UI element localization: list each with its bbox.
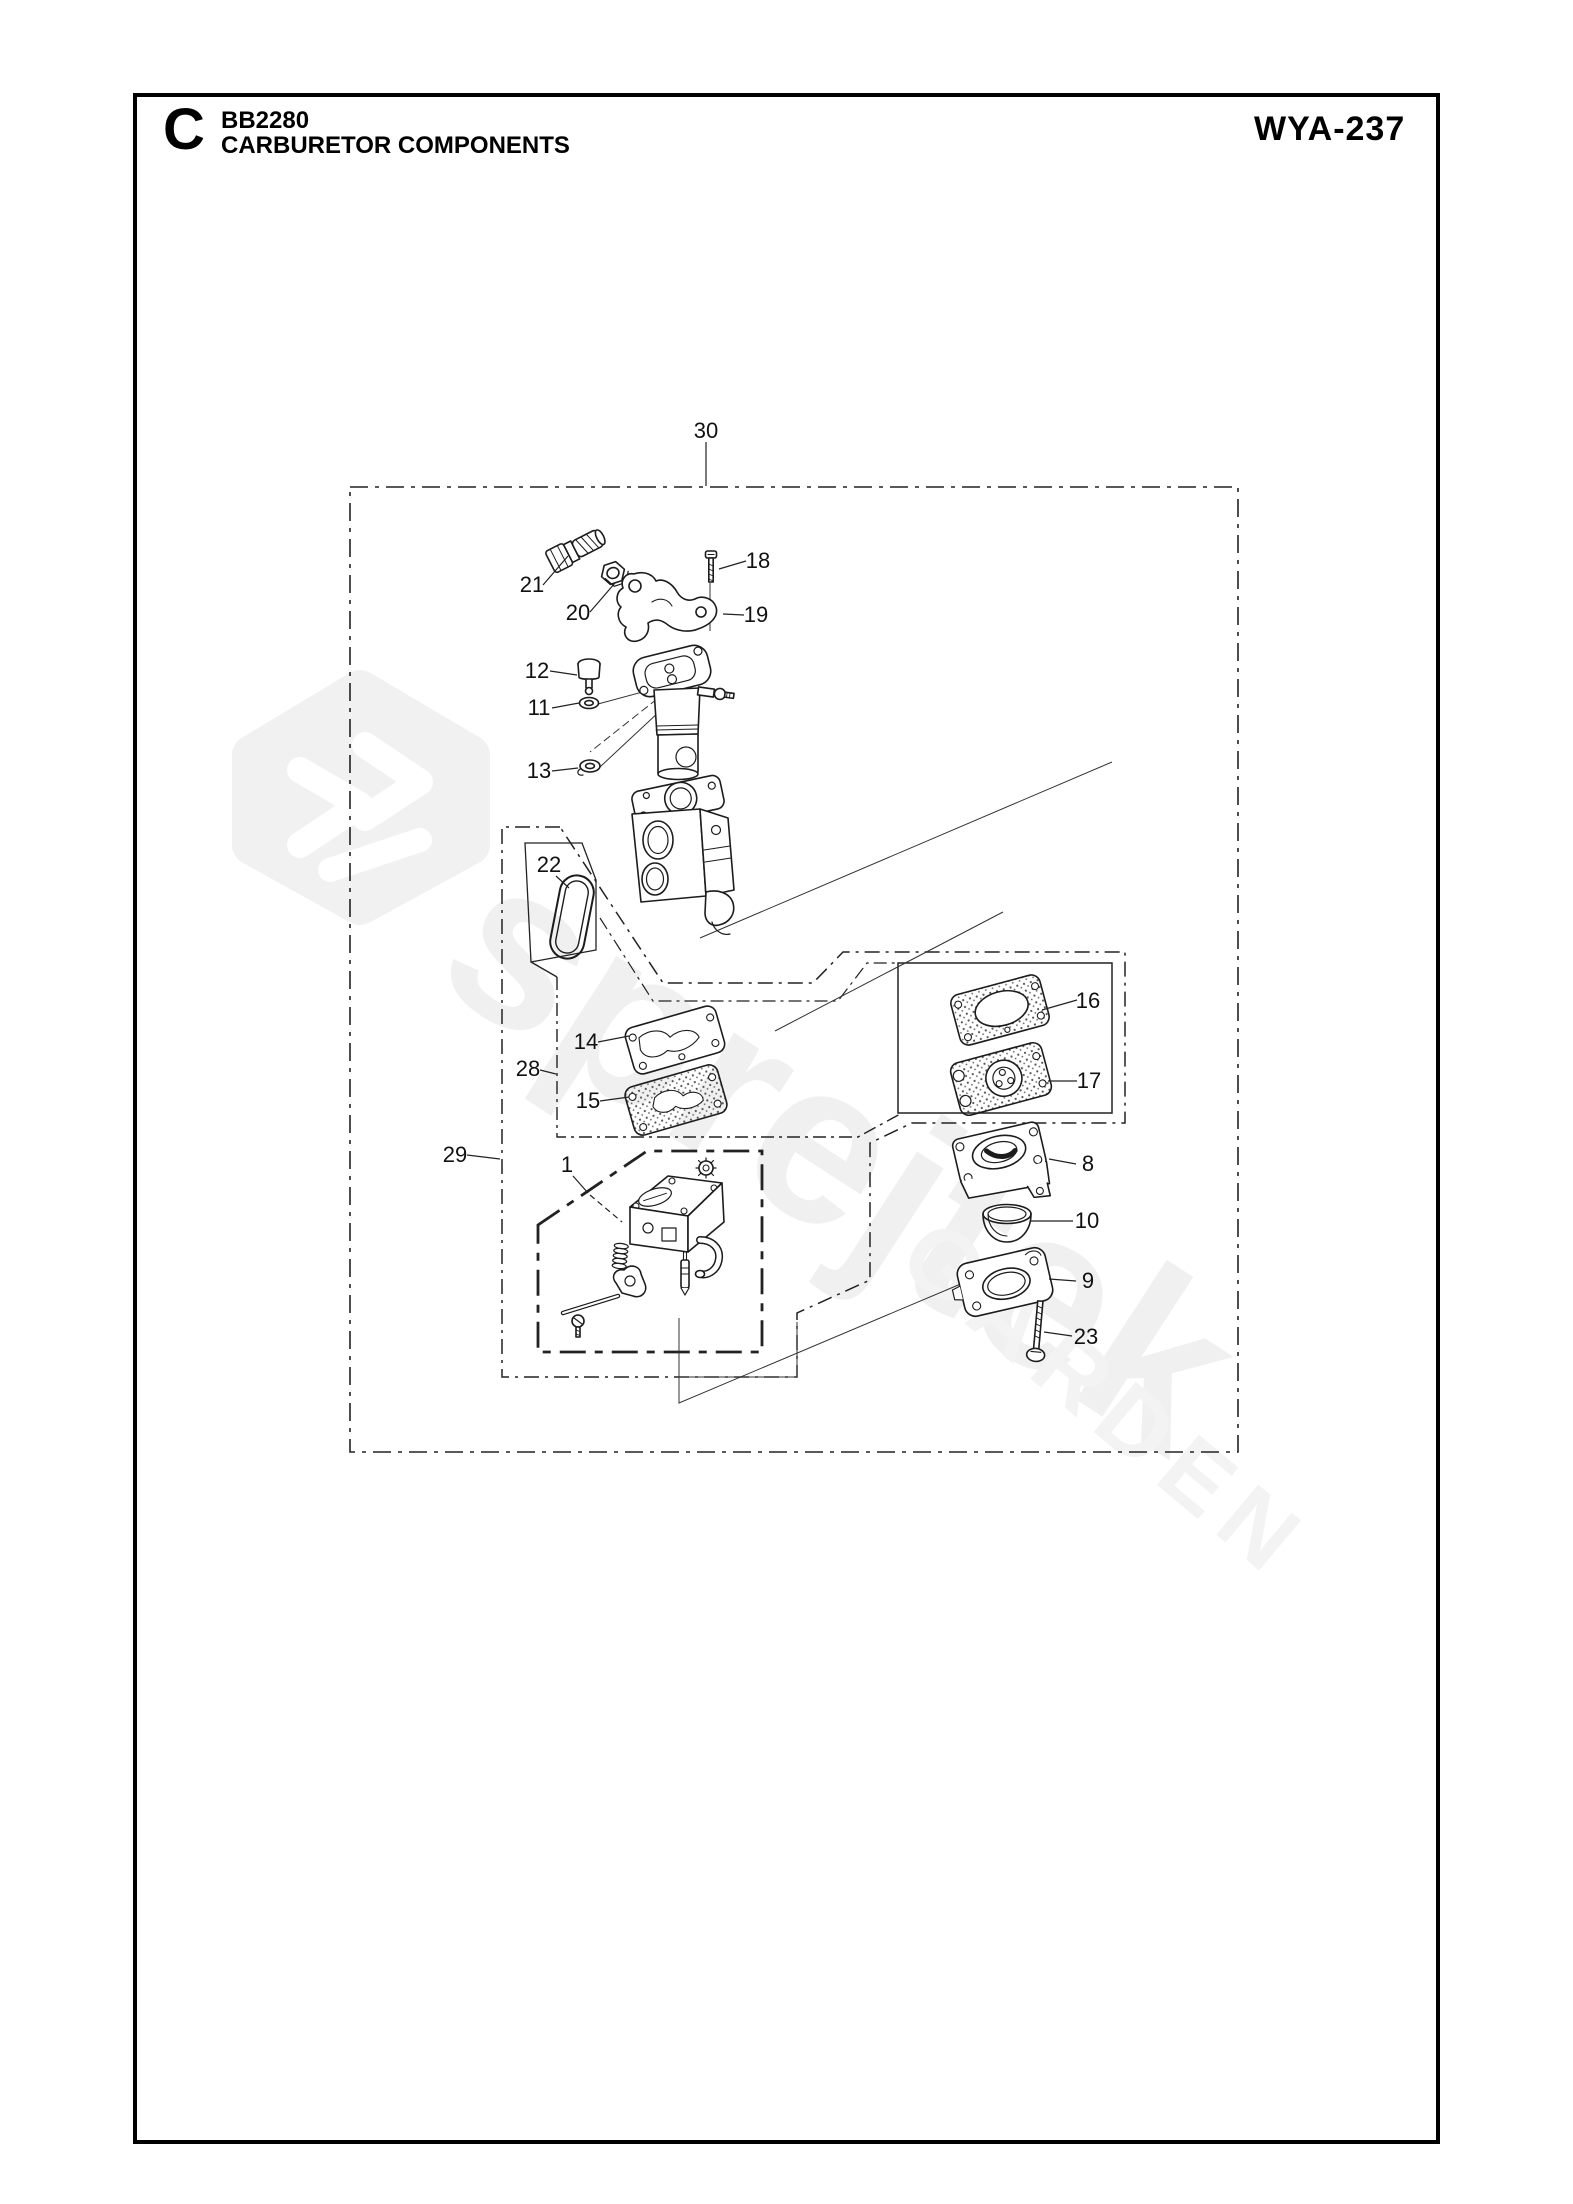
part-1-gear-nut: [696, 1158, 716, 1178]
callout-23: 23: [1074, 1324, 1098, 1349]
watermark: sprejtek GARDEN: [252, 690, 1329, 1600]
callout-9: 9: [1082, 1268, 1094, 1293]
leader-19: [723, 614, 744, 615]
exploded-parts-diagram: sprejtek GARDEN: [0, 0, 1573, 2204]
assembly-diagonal: [700, 762, 1112, 938]
part-1-spring: [612, 1243, 629, 1270]
callout-22: 22: [537, 852, 561, 877]
parts-catalog-page: C BB2280 CARBURETOR COMPONENTS WYA-237 s…: [0, 0, 1573, 2204]
leader-29: [467, 1155, 500, 1159]
callout-21: 21: [520, 572, 544, 597]
callout-17: 17: [1077, 1068, 1101, 1093]
leader-13: [552, 768, 578, 771]
callout-1: 1: [561, 1152, 573, 1177]
part-18-screw: [706, 551, 717, 582]
leader-20: [590, 583, 615, 612]
callout-12: 12: [525, 658, 549, 683]
leader-12: [550, 671, 577, 675]
callout-29: 29: [443, 1142, 467, 1167]
callout-19: 19: [744, 602, 768, 627]
leader-1-chain: [590, 1195, 622, 1222]
group1-pointer: [679, 1322, 797, 1377]
callout-20: 20: [566, 600, 590, 625]
part-1-lever-shaft: [563, 1266, 646, 1313]
leader-11: [552, 703, 579, 708]
callout-11: 11: [528, 695, 551, 720]
part-1-carburetor-assembly: [563, 1158, 724, 1337]
callout-16: 16: [1076, 988, 1100, 1013]
part-19-bracket: [617, 573, 717, 642]
part-17-diaphragm: [949, 1041, 1054, 1117]
callout-8: 8: [1082, 1151, 1094, 1176]
callout-18: 18: [746, 548, 770, 573]
leader-18: [719, 561, 746, 569]
part-12-valve: [578, 659, 600, 695]
part-16-gasket: [949, 973, 1051, 1047]
callout-10: 10: [1075, 1208, 1099, 1233]
fuel-pump-assembly: [630, 642, 734, 779]
part-13-washer: [578, 760, 600, 775]
leader-16: [1042, 1000, 1077, 1010]
part-21-fitting-bolt: [545, 525, 609, 573]
part-1-idle-screw: [572, 1315, 584, 1337]
part-1-needle: [681, 1252, 689, 1295]
callout-30: 30: [694, 418, 718, 443]
callout-15: 15: [576, 1088, 600, 1113]
watermark-logo: [252, 690, 470, 905]
leader-1: [573, 1176, 588, 1193]
callout-13: 13: [527, 758, 551, 783]
callout-14: 14: [574, 1029, 598, 1054]
part-11-washer: [580, 698, 599, 709]
callout-28: 28: [516, 1056, 540, 1081]
